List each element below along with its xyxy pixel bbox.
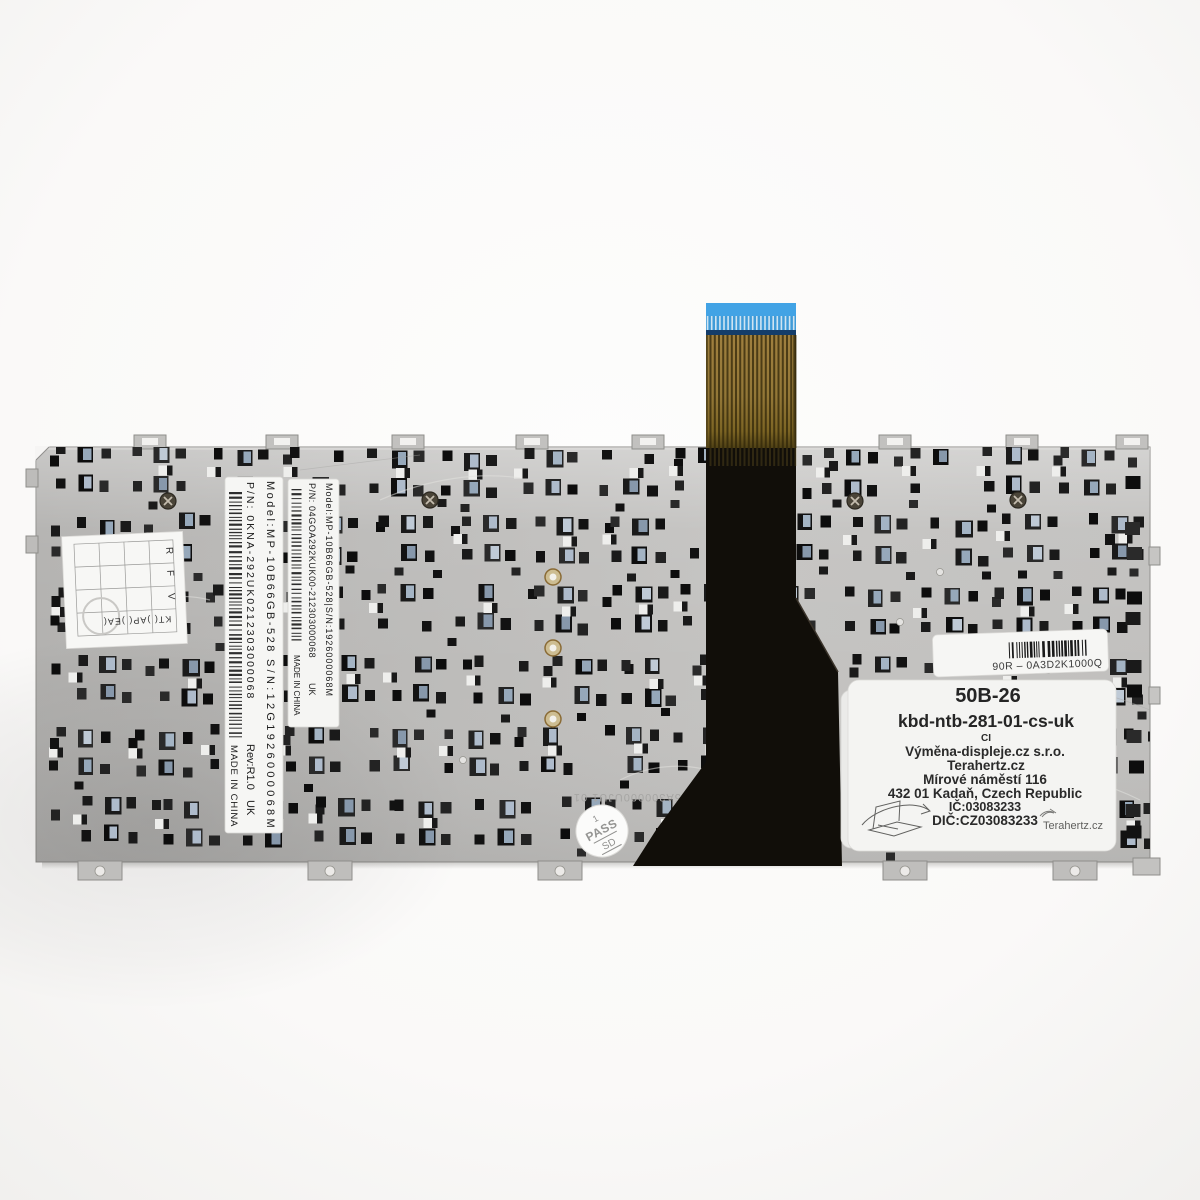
svg-text:DIČ:CZ03083233: DIČ:CZ03083233: [932, 813, 1038, 828]
svg-text:UK: UK: [307, 683, 317, 696]
svg-text:kbd-ntb-281-01-cs-uk: kbd-ntb-281-01-cs-uk: [898, 711, 1074, 731]
svg-text:R: R: [163, 547, 174, 555]
svg-text:MADE IN CHINA: MADE IN CHINA: [292, 655, 301, 716]
svg-text:Terahertz.cz: Terahertz.cz: [947, 758, 1025, 773]
svg-text:P/N: 04GOA292KUK00-21230300006: P/N: 04GOA292KUK00-212303000068: [307, 483, 317, 658]
svg-text:MADE IN CHINA: MADE IN CHINA: [228, 745, 239, 827]
svg-text:Model:MP-10B66GB-528: Model:MP-10B66GB-528: [264, 481, 276, 654]
svg-text:CI: CI: [981, 733, 991, 744]
svg-text:UK: UK: [244, 800, 256, 816]
svg-text:IČ:03083233: IČ:03083233: [949, 799, 1021, 814]
svg-text:Rev:R1.0: Rev:R1.0: [244, 744, 256, 790]
svg-text:Terahertz.cz: Terahertz.cz: [1043, 820, 1103, 832]
svg-text:V: V: [165, 593, 176, 600]
svg-text:50B-26: 50B-26: [955, 685, 1021, 707]
svg-text:S/N:12G1926000068M: S/N:12G1926000068M: [264, 659, 276, 831]
svg-text:432 01 Kadaň, Czech Republic: 432 01 Kadaň, Czech Republic: [888, 786, 1083, 801]
svg-text:05A300000UJU1 01: 05A300000UJU1 01: [573, 791, 688, 803]
svg-text:F: F: [164, 570, 175, 577]
svg-text:Výměna-displeje.cz s.r.o.: Výměna-displeje.cz s.r.o.: [905, 744, 1065, 759]
svg-text:Mírové náměstí 116: Mírové náměstí 116: [923, 772, 1047, 787]
svg-text:P/N: 0KNA-292UK0212303000068: P/N: 0KNA-292UK0212303000068: [244, 482, 256, 700]
